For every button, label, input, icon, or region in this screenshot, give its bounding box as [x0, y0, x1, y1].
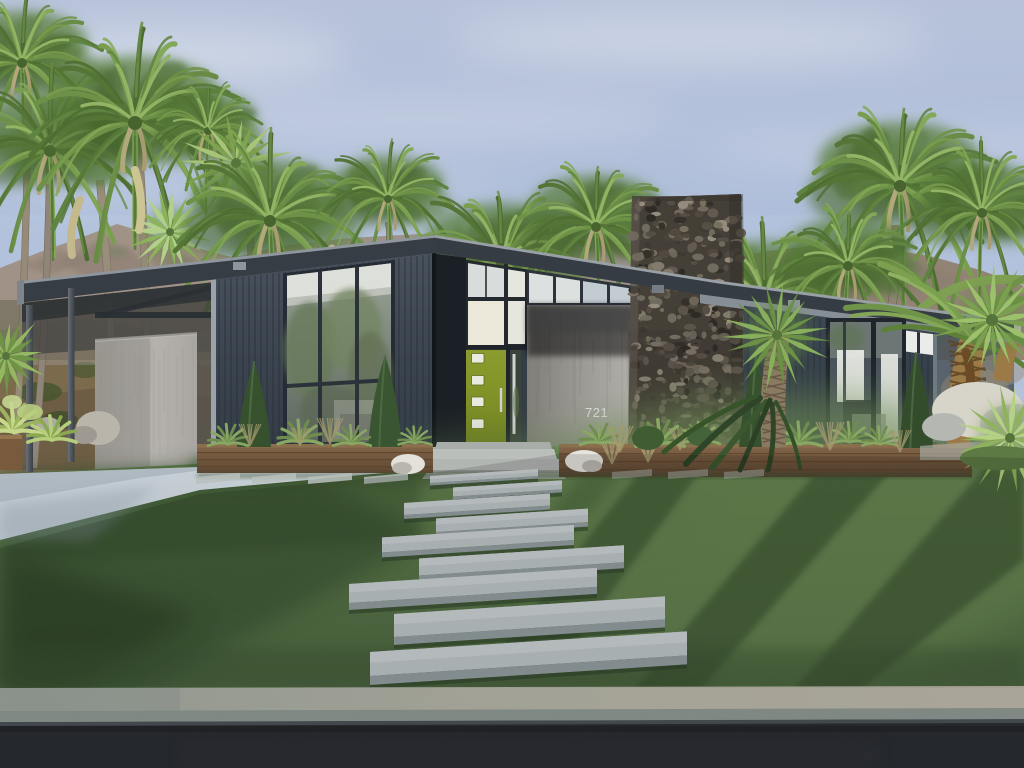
svg-text:721: 721 — [585, 405, 608, 420]
